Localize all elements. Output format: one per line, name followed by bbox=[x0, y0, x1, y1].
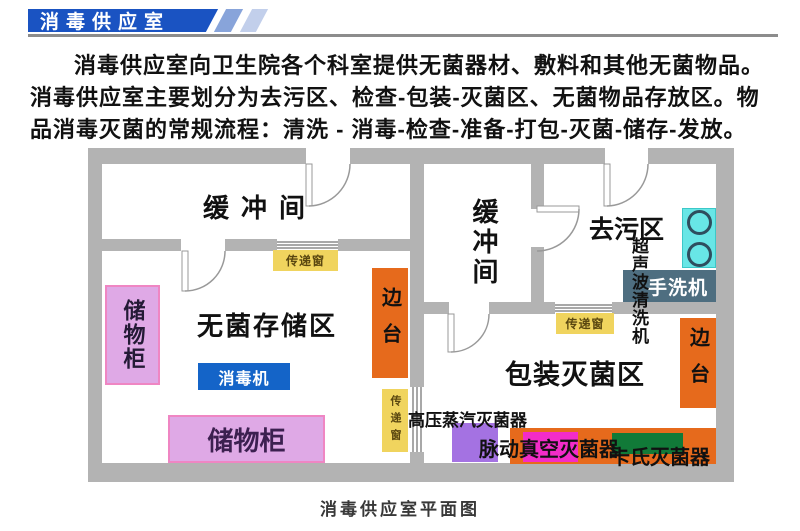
hand-washer-label: 手洗机 bbox=[648, 273, 708, 300]
storage-cabinet-label: 储物柜 bbox=[117, 299, 149, 371]
basin-icon bbox=[687, 242, 712, 267]
banner-stripe bbox=[214, 9, 243, 32]
wall-segment bbox=[88, 148, 306, 164]
page-title: 消毒供应室 bbox=[40, 7, 170, 34]
header-banner: 消毒供应室 bbox=[28, 9, 191, 32]
door-swing-icon bbox=[182, 251, 225, 291]
wall-segment bbox=[88, 148, 102, 482]
wall-segment bbox=[225, 239, 277, 251]
wall-segment bbox=[410, 452, 424, 463]
ultrasonic-cleaner-basins bbox=[682, 208, 716, 268]
wall-segment bbox=[531, 247, 544, 302]
wall-segment bbox=[102, 239, 181, 251]
transfer-window-label: 传递窗 bbox=[556, 313, 614, 334]
storage-cabinet-label: 储物柜 bbox=[207, 421, 285, 458]
wall-segment bbox=[338, 239, 410, 251]
door-swing-icon bbox=[537, 206, 579, 251]
disinfector-machine: 消毒机 bbox=[198, 363, 290, 390]
door-swing-icon bbox=[604, 164, 648, 206]
storage-cabinet-bottom: 储物柜 bbox=[168, 415, 325, 463]
wall-segment bbox=[410, 164, 424, 387]
autoclave-label: 高压蒸汽灭菌器 bbox=[408, 406, 527, 431]
figure-caption: 消毒供应室平面图 bbox=[0, 495, 800, 520]
pulse-vacuum-sterilizer-label: 脉动真空灭菌器 bbox=[479, 433, 619, 462]
side-table-right: 边台 bbox=[680, 318, 716, 408]
basin-icon bbox=[687, 210, 712, 235]
ultrasonic-cleaner-label: 超声波清洗机 bbox=[626, 237, 651, 345]
cassette-sterilizer-label: 卡氏灭菌器 bbox=[610, 441, 710, 470]
transfer-window-label: 传递窗 bbox=[382, 389, 408, 452]
wall-segment bbox=[424, 302, 449, 314]
wall-segment bbox=[716, 148, 734, 482]
wall-segment bbox=[489, 302, 555, 314]
side-table-left: 边台 bbox=[372, 268, 408, 378]
door-swing-icon bbox=[448, 314, 489, 352]
room-label-buffer-right: 缓冲间 bbox=[466, 198, 503, 288]
header-divider bbox=[28, 34, 778, 37]
disinfector-label: 消毒机 bbox=[218, 365, 269, 389]
wall-segment bbox=[350, 148, 605, 164]
storage-cabinet-left: 储物柜 bbox=[105, 285, 160, 385]
transfer-window-label: 传递窗 bbox=[273, 250, 338, 271]
banner-stripe bbox=[240, 9, 268, 32]
room-label-sterile-storage: 无菌存储区 bbox=[197, 306, 337, 343]
room-label-buffer-left: 缓冲间 bbox=[203, 188, 317, 225]
side-table-label: 边台 bbox=[376, 287, 405, 359]
room-label-packaging-sterilization: 包装灭菌区 bbox=[505, 353, 645, 392]
side-table-label: 边台 bbox=[684, 327, 713, 399]
wall-segment bbox=[531, 164, 544, 209]
intro-paragraph: 消毒供应室向卫生院各个科室提供无菌器材、敷料和其他无菌物品。消毒供应室主要划分为… bbox=[30, 50, 772, 146]
